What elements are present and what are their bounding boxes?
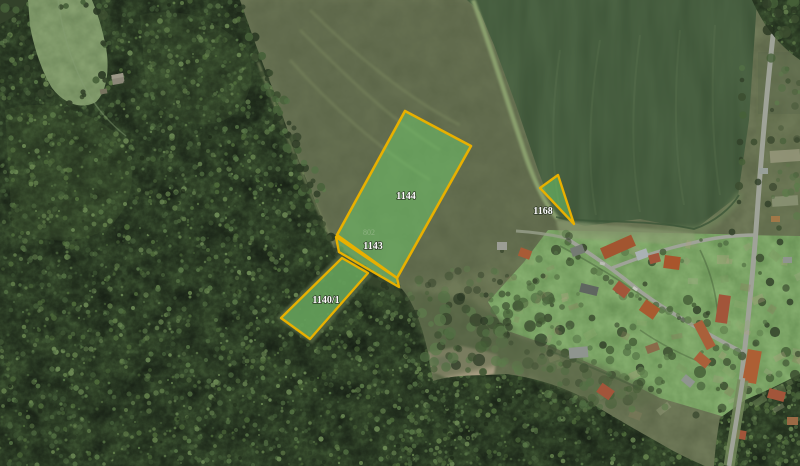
svg-text:1143: 1143: [363, 241, 382, 252]
svg-text:1140/1: 1140/1: [312, 295, 339, 306]
svg-text:1144: 1144: [396, 191, 415, 202]
svg-text:1168: 1168: [533, 206, 552, 217]
svg-text:802: 802: [363, 228, 375, 237]
